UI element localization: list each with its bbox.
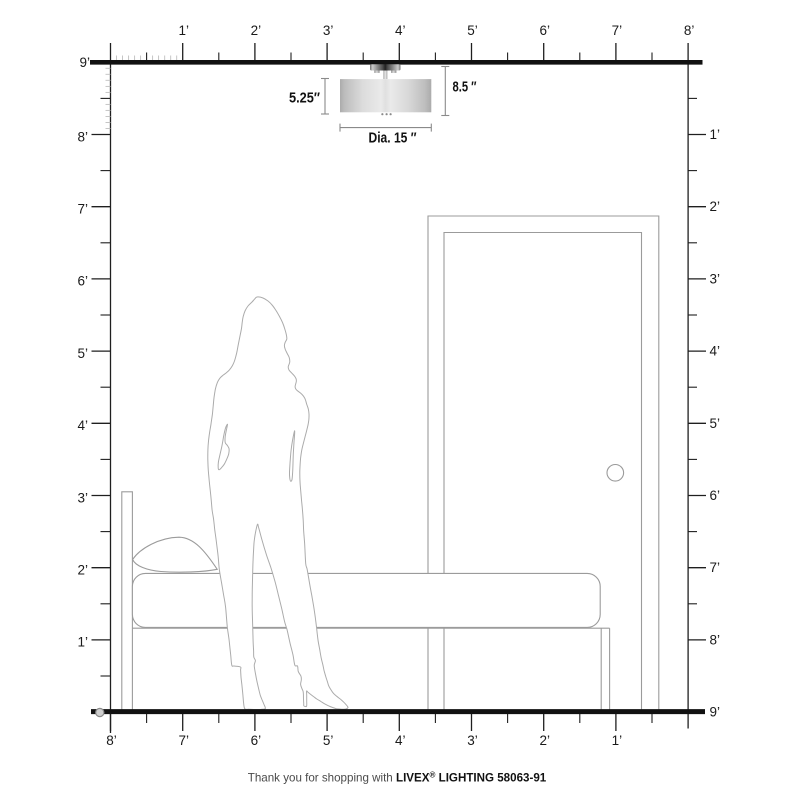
svg-text:7’: 7’ — [77, 202, 88, 217]
svg-text:5’: 5’ — [323, 733, 334, 748]
svg-text:6’: 6’ — [539, 23, 550, 38]
svg-text:3’: 3’ — [710, 271, 721, 286]
svg-text:7’: 7’ — [710, 560, 721, 575]
svg-text:Thank you for shopping with LI: Thank you for shopping with LIVEX® LIGHT… — [248, 771, 547, 785]
svg-text:4’: 4’ — [77, 418, 88, 433]
svg-text:4’: 4’ — [710, 344, 721, 359]
svg-text:1’: 1’ — [612, 733, 623, 748]
svg-text:4’: 4’ — [395, 23, 406, 38]
svg-text:8.5 ″: 8.5 ″ — [453, 79, 477, 96]
svg-text:2’: 2’ — [77, 563, 88, 578]
svg-text:5’: 5’ — [710, 416, 721, 431]
svg-text:6’: 6’ — [251, 733, 262, 748]
svg-text:1’: 1’ — [77, 635, 88, 650]
svg-text:4’: 4’ — [395, 733, 406, 748]
svg-text:8’: 8’ — [106, 733, 117, 748]
svg-text:1’: 1’ — [178, 23, 189, 38]
svg-text:Dia. 15 ″: Dia. 15 ″ — [369, 130, 417, 147]
svg-text:7’: 7’ — [178, 733, 189, 748]
svg-text:9’: 9’ — [79, 55, 90, 70]
svg-text:1’: 1’ — [710, 127, 721, 142]
svg-text:3’: 3’ — [77, 490, 88, 505]
svg-text:8’: 8’ — [77, 129, 88, 144]
svg-text:8’: 8’ — [684, 23, 695, 38]
svg-text:7’: 7’ — [612, 23, 623, 38]
svg-text:2’: 2’ — [251, 23, 262, 38]
svg-text:2’: 2’ — [710, 199, 721, 214]
svg-text:9’: 9’ — [710, 705, 721, 720]
svg-text:8’: 8’ — [710, 632, 721, 647]
svg-text:3’: 3’ — [467, 733, 478, 748]
svg-text:5’: 5’ — [467, 23, 478, 38]
svg-text:2’: 2’ — [539, 733, 550, 748]
svg-text:3’: 3’ — [323, 23, 334, 38]
svg-text:6’: 6’ — [710, 488, 721, 503]
svg-text:5’: 5’ — [77, 346, 88, 361]
svg-text:6’: 6’ — [77, 274, 88, 289]
svg-text:5.25″: 5.25″ — [289, 90, 320, 107]
